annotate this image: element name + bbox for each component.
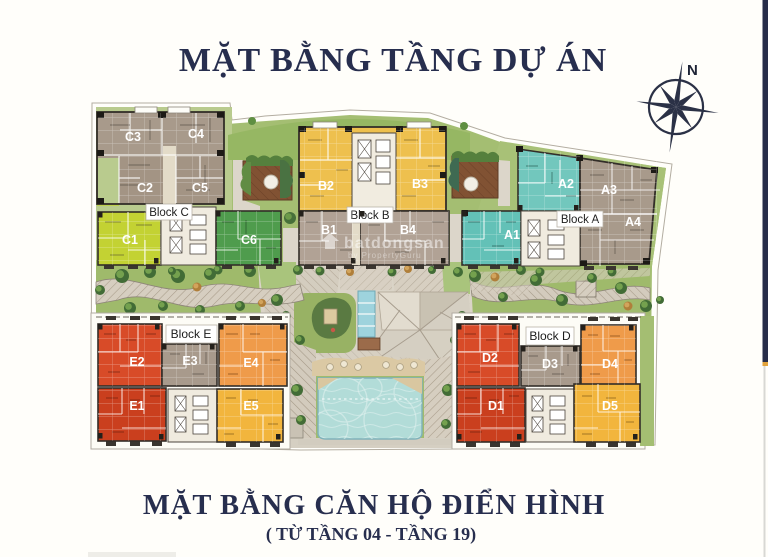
svg-text:( TỪ TẦNG 04 - TẦNG 19): ( TỪ TẦNG 04 - TẦNG 19) bbox=[266, 523, 476, 545]
svg-text:Block D: Block D bbox=[529, 329, 571, 343]
svg-text:by PropertyGuru: by PropertyGuru bbox=[348, 251, 422, 260]
svg-text:Block E: Block E bbox=[171, 327, 212, 341]
svg-text:MẶT BẰNG CĂN HỘ ĐIỂN HÌNH: MẶT BẰNG CĂN HỘ ĐIỂN HÌNH bbox=[143, 487, 605, 521]
svg-text:batdongsan: batdongsan bbox=[344, 235, 445, 252]
svg-text:N: N bbox=[687, 62, 698, 79]
svg-text:MẶT BẰNG TẦNG DỰ ÁN: MẶT BẰNG TẦNG DỰ ÁN bbox=[179, 40, 607, 79]
